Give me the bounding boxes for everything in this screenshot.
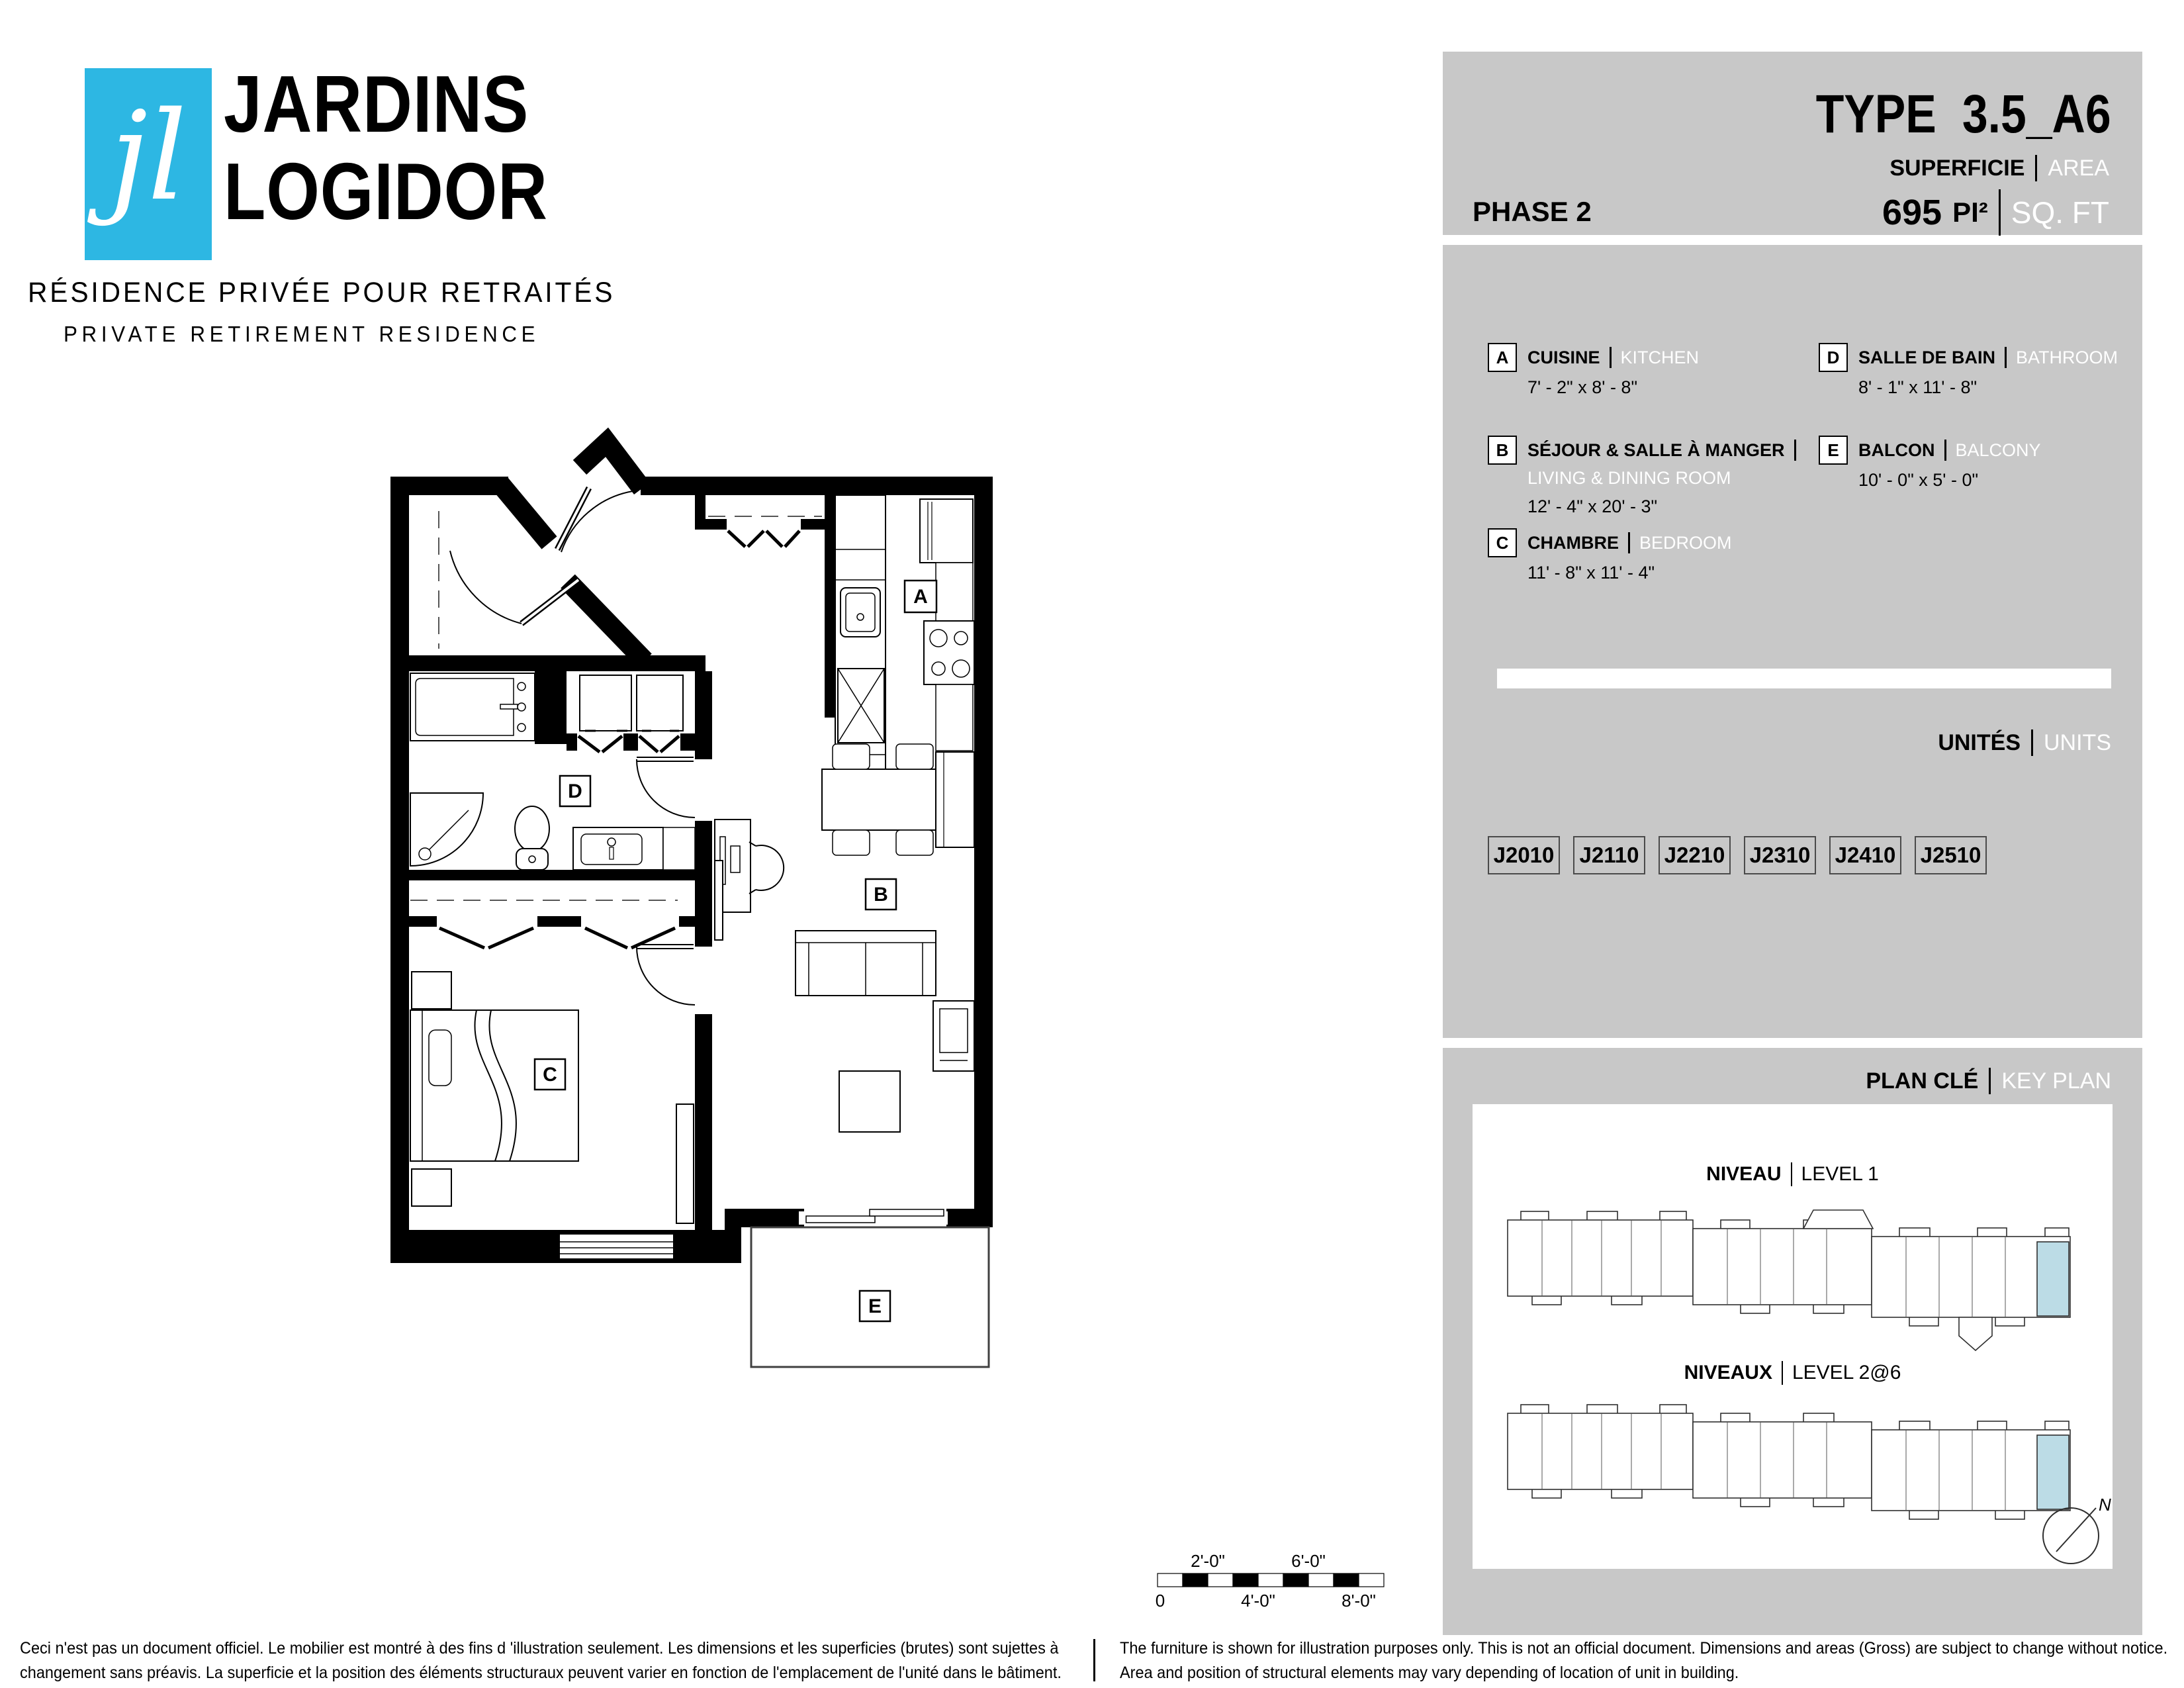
washer [580,675,631,731]
floor-plan-drawing: A B C D E [390,410,1013,1377]
dining-chair [896,830,933,855]
key-plan-level2-drawing [1502,1390,2081,1526]
unit-number-J2010: J2010 [1488,836,1560,874]
divider-bar [1989,1068,1991,1094]
desk-chair [756,845,784,890]
floorplan-sheet: jl JARDINS LOGIDOR RÉSIDENCE PRIVÉE POUR… [0,0,2184,1688]
legend-dims: 8' - 1" x 11' - 8" [1858,379,2118,397]
kitchen-appliances [920,499,974,751]
balcony-outline [751,1209,989,1367]
area-unit-en: SQ. FT [2011,195,2109,230]
legend-name-fr: SÉJOUR & SALLE À MANGER [1527,442,1785,459]
scale-label-0: 0 [1156,1591,1165,1611]
legend-name-fr: CHAMBRE [1527,534,1619,552]
divider-bar [2031,729,2033,756]
room-label-living: B [874,884,888,906]
key-plan-level1-drawing [1502,1197,2081,1356]
dresser [676,1104,694,1223]
disclaimer-divider [1093,1639,1095,1681]
units-title: UNITÉS UNITS [1938,729,2111,756]
dining-chair [833,744,870,769]
logo-tagline-en: PRIVATE RETIREMENT RESIDENCE [64,322,565,347]
legend-item-balcony: E BALCON BALCONY 10' - 0" x 5' - 0" [1819,436,2041,489]
tv [715,861,723,940]
highlighted-unit-level1 [2037,1242,2069,1316]
entry-vestibule-walls [500,442,645,661]
sliding-door-panel [870,1209,944,1216]
room-label-balcony: E [868,1295,882,1317]
divider-bar [1944,440,1946,461]
legend-name-fr: BALCON [1858,442,1935,459]
coffee-table [839,1071,900,1132]
sideboard [936,752,974,847]
key-plan-title: PLAN CLÉ KEY PLAN [1866,1068,2111,1094]
area-value-row: 695 PI² SQ. FT [1882,189,2109,236]
scale-label-6ft: 6'-0" [1291,1552,1326,1571]
scale-bar: 2'-0" 6'-0" 0 4'-0" 8'-0" [1155,1552,1387,1615]
legend-name-en: BEDROOM [1639,534,1732,552]
key-plan-panel: PLAN CLÉ KEY PLAN NIVEAU LEVEL 1 [1443,1048,2142,1635]
bedroom-furniture [410,972,694,1223]
legend-dims: 10' - 0" x 5' - 0" [1858,471,2041,489]
header-panel: TYPE3.5_A6 SUPERFICIE AREA PHASE 2 695 P… [1443,52,2142,235]
legend-name-en: BALCONY [1956,442,2041,459]
toilet [515,806,549,851]
divider-bar [1999,189,2001,236]
scale-label-4ft: 4'-0" [1241,1591,1275,1611]
area-label: AREA [2048,156,2109,181]
divider-bar [1794,440,1796,461]
area-unit-fr: PI² [1952,197,1988,228]
divider-bar [1782,1361,1783,1385]
divider-bar [1628,532,1630,553]
legend-panel: A CUISINE KITCHEN 7' - 2" x 8' - 8" B SÉ… [1443,245,2142,1038]
legend-name-en: BATHROOM [2016,349,2118,367]
logo-mark: jl [85,68,212,260]
units-label-fr: UNITÉS [1938,730,2021,756]
legend-item-kitchen: A CUISINE KITCHEN 7' - 2" x 8' - 8" [1488,343,1699,397]
living-furniture [715,744,974,1132]
bedroom-door [637,947,695,1005]
logo-name-line2: LOGIDOR [224,151,605,232]
legend-key-box: E [1819,436,1848,465]
units-label-en: UNITS [2044,730,2111,756]
bathroom-door [637,759,695,818]
room-label-kitchen: A [913,586,928,608]
nightstand [412,972,451,1009]
divider-bar [2005,347,2007,368]
scale-label-8ft: 8'-0" [1342,1591,1376,1611]
legend-key-box: C [1488,528,1517,557]
bedroom-window [559,1234,674,1259]
scale-label-2ft: 2'-0" [1191,1552,1225,1571]
disclaimer-french: Ceci n'est pas un document officiel. Le … [20,1636,1062,1685]
unit-number-J2410: J2410 [1829,836,1901,874]
unit-number-J2510: J2510 [1915,836,1987,874]
legend-name-en: LIVING & DINING ROOM [1527,469,1731,487]
divider-bar [1610,347,1612,368]
logo-monogram: jl [110,95,187,218]
unit-number-J2210: J2210 [1659,836,1731,874]
nightstand [412,1169,451,1206]
phase-label: PHASE 2 [1473,196,1592,228]
legend-item-bathroom: D SALLE DE BAIN BATHROOM 8' - 1" x 11' -… [1819,343,2118,397]
legend-dims: 12' - 4" x 20' - 3" [1527,498,1796,516]
pillow [429,1030,451,1086]
level1-label: NIVEAU LEVEL 1 [1473,1162,2113,1186]
legend-name-fr: SALLE DE BAIN [1858,349,1995,367]
unit-type-title: TYPE3.5_A6 [1764,83,2111,146]
dining-chair [896,744,933,769]
legend-key-box: A [1488,343,1517,372]
room-label-bedroom: C [543,1064,557,1086]
legend-name-fr: CUISINE [1527,349,1600,367]
disclaimer-english: The furniture is shown for illustration … [1120,1636,2167,1685]
legend-name-en: KITCHEN [1621,349,1700,367]
superficie-label: SUPERFICIE [1889,156,2025,181]
divider-bar [1791,1162,1792,1186]
compass-north-label: N [2099,1496,2111,1515]
unit-number-J2310: J2310 [1744,836,1816,874]
logo-name-line1: JARDINS [224,64,583,144]
area-subtitle: SUPERFICIE AREA [1889,155,2109,181]
key-plan-label-fr: PLAN CLÉ [1866,1068,1978,1094]
dining-table [822,769,948,830]
entry-door [557,488,633,552]
sliding-door-panel [806,1216,875,1223]
divider-bar [2035,155,2037,181]
key-plan-label-en: KEY PLAN [2001,1068,2111,1094]
vestibule-inner-door [450,551,578,624]
legend-item-living: B SÉJOUR & SALLE À MANGER LIVING & DININ… [1488,436,1796,516]
dining-chair [833,830,870,855]
legend-dims: 7' - 2" x 8' - 8" [1527,379,1699,397]
unit-number-J2110: J2110 [1573,836,1645,874]
legend-key-box: D [1819,343,1848,372]
key-plan-canvas: NIVEAU LEVEL 1 [1473,1104,2113,1569]
legend-item-bedroom: C CHAMBRE BEDROOM 11' - 8" x 11' - 4" [1488,528,1732,582]
legend-key-box: B [1488,436,1517,465]
logo-tagline-fr: RÉSIDENCE PRIVÉE POUR RETRAITÉS [28,277,646,309]
dryer [637,675,683,731]
section-divider-bar [1497,669,2111,688]
level2-label: NIVEAUX LEVEL 2@6 [1473,1361,2113,1385]
area-value: 695 [1882,192,1942,233]
compass: N [2035,1496,2111,1569]
legend-dims: 11' - 8" x 11' - 4" [1527,564,1732,582]
room-label-bathroom: D [568,780,582,802]
